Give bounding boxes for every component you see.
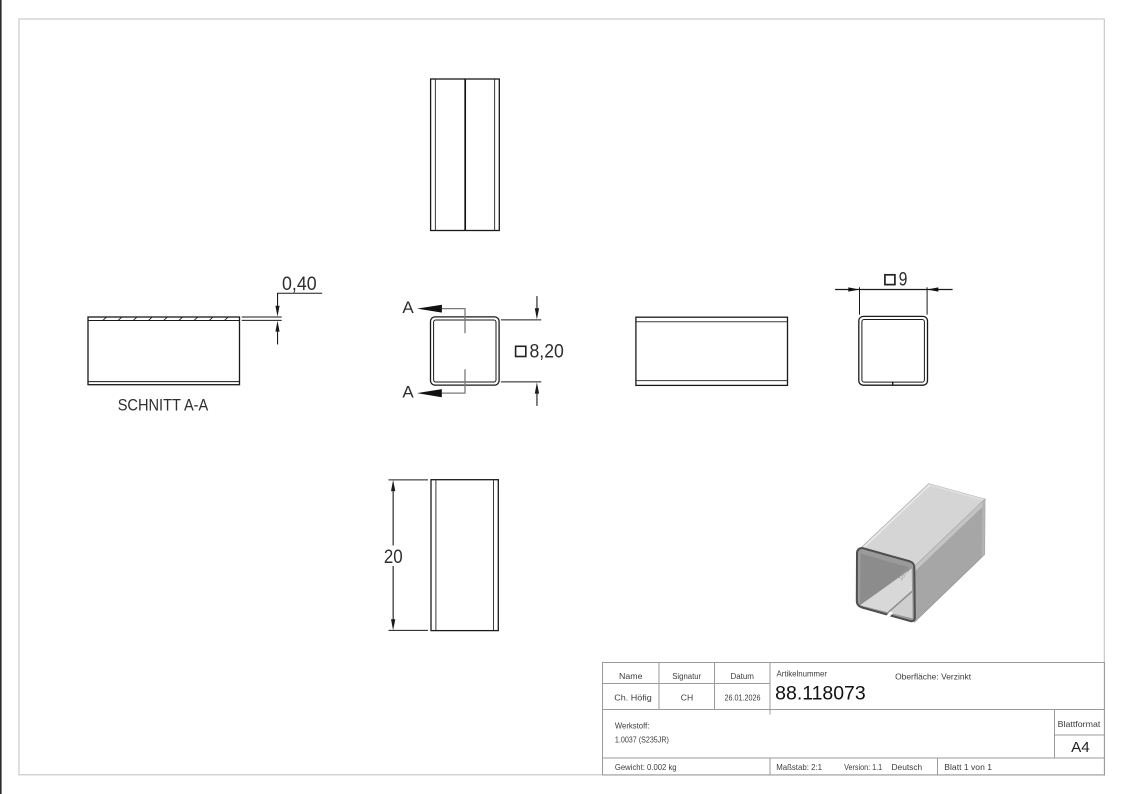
svg-text:8,20: 8,20 [530,342,564,363]
svg-text:A4: A4 [1071,739,1090,756]
svg-text:Blatt 1 von 1: Blatt 1 von 1 [944,762,992,772]
svg-text:Version: 1.1: Version: 1.1 [844,762,882,772]
svg-text:0,40: 0,40 [282,274,317,295]
svg-text:Ch. Höfig: Ch. Höfig [614,693,652,703]
svg-text:Signatur: Signatur [672,671,701,681]
svg-text:88.118073: 88.118073 [775,683,866,704]
svg-text:A: A [402,382,414,401]
svg-text:Datum: Datum [730,671,754,681]
svg-text:Name: Name [619,671,643,681]
svg-text:Blattformat: Blattformat [1058,719,1101,729]
svg-text:Artikelnummer: Artikelnummer [777,669,828,679]
svg-text:Oberfläche: Verzinkt: Oberfläche: Verzinkt [895,672,972,682]
svg-text:26.01.2026: 26.01.2026 [725,693,761,703]
svg-text:CH: CH [681,693,693,703]
svg-text:A: A [402,298,414,317]
svg-text:SCHNITT A-A: SCHNITT A-A [118,397,209,415]
svg-text:20: 20 [384,547,403,568]
svg-text:Deutsch: Deutsch [892,762,923,772]
svg-text:1.0037 (S235JR): 1.0037 (S235JR) [615,735,669,745]
svg-text:Werkstoff:: Werkstoff: [615,720,650,730]
svg-text:9: 9 [899,270,908,291]
svg-text:Gewicht: 0.002 kg: Gewicht: 0.002 kg [615,762,677,772]
svg-text:Maßstab: 2:1: Maßstab: 2:1 [776,762,822,772]
